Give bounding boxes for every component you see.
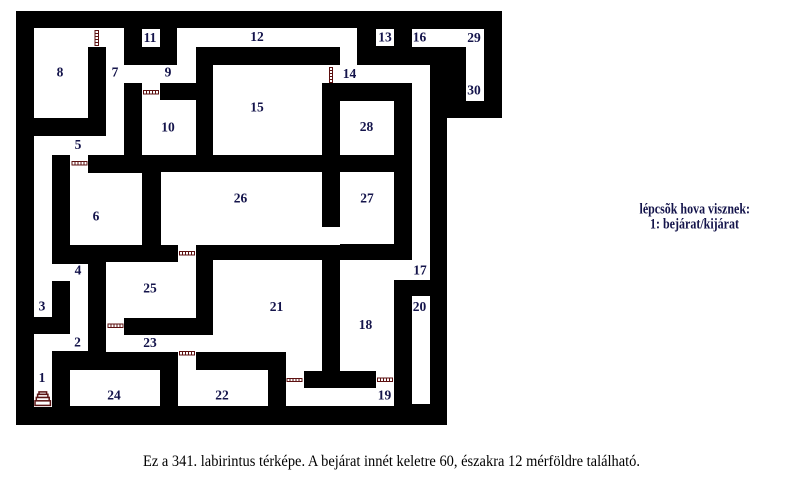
svg-text:29: 29 (467, 30, 481, 45)
svg-text:25: 25 (143, 281, 157, 296)
svg-text:22: 22 (215, 388, 229, 403)
svg-text:10: 10 (161, 120, 175, 135)
svg-text:9: 9 (165, 65, 172, 80)
svg-text:5: 5 (75, 137, 82, 152)
svg-text:lépcsõk hova visznek:: lépcsõk hova visznek: (640, 202, 751, 218)
svg-text:14: 14 (343, 66, 357, 81)
svg-text:6: 6 (93, 209, 100, 224)
svg-text:15: 15 (250, 100, 264, 115)
svg-text:17: 17 (413, 263, 427, 278)
svg-text:11: 11 (144, 30, 157, 45)
svg-text:19: 19 (378, 388, 392, 403)
svg-text:12: 12 (250, 29, 264, 44)
svg-text:24: 24 (107, 388, 121, 403)
svg-text:23: 23 (143, 335, 157, 350)
svg-text:3: 3 (39, 299, 46, 314)
svg-text:20: 20 (413, 299, 427, 314)
svg-text:16: 16 (413, 30, 427, 45)
svg-text:4: 4 (75, 263, 82, 278)
svg-text:1: 1 (39, 370, 46, 385)
svg-text:2: 2 (74, 335, 81, 350)
svg-text:26: 26 (234, 191, 248, 206)
svg-text:Ez a 341. labirintus térképe.: Ez a 341. labirintus térképe. A bejárat … (143, 453, 640, 470)
svg-text:21: 21 (270, 299, 284, 314)
svg-text:8: 8 (57, 65, 64, 80)
svg-text:27: 27 (360, 191, 374, 206)
svg-text:28: 28 (360, 119, 374, 134)
svg-text:7: 7 (112, 65, 119, 80)
svg-text:30: 30 (467, 83, 481, 98)
svg-text:1: bejárat/kijárat: 1: bejárat/kijárat (650, 217, 739, 233)
svg-text:13: 13 (378, 30, 392, 45)
svg-text:18: 18 (359, 317, 373, 332)
